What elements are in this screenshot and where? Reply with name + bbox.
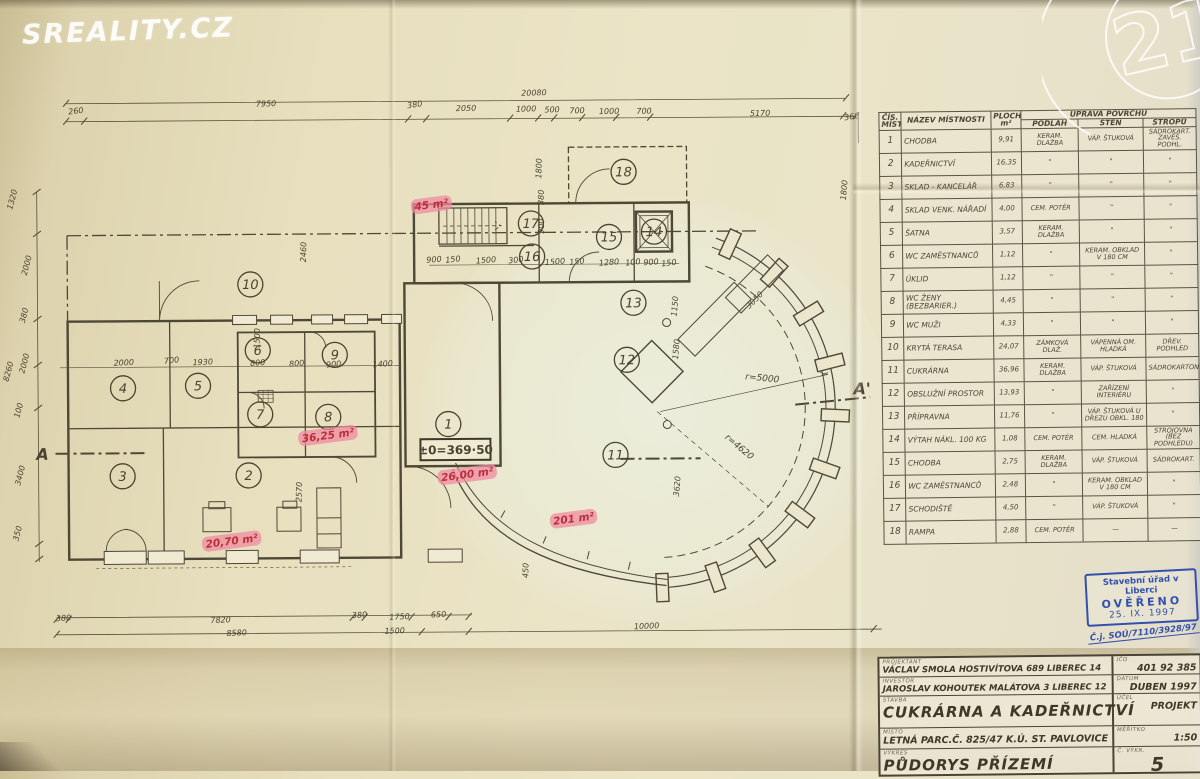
room-number-cell: 15 <box>883 452 906 475</box>
wall-finish-cell: — <box>1083 518 1148 542</box>
room-name-cell: KADEŘNICTVÍ <box>902 152 992 176</box>
title-block-row: IČO401 92 385 <box>1113 655 1199 675</box>
floor-finish-cell: " <box>1024 381 1081 405</box>
room-number-cell: 14 <box>883 429 906 452</box>
floor-finish-cell: " <box>1024 312 1081 336</box>
dim-label: 150 <box>661 258 677 269</box>
title-block-value: 1:50 <box>1117 732 1197 744</box>
title-block-value: CUKRÁRNA A KADEŘNICTVÍ <box>883 701 1109 721</box>
room-name-cell: RAMPA <box>906 520 996 544</box>
room-number-cell: 13 <box>882 406 905 429</box>
title-block-right: IČO401 92 385DATUMDUBEN 1997ÚČELPROJEKTM… <box>1113 655 1200 772</box>
wall-finish-cell: VÁP. ŠTUKOVÁ <box>1083 495 1148 519</box>
dim-label: 380 <box>407 99 423 110</box>
room-number-cell: 7 <box>881 268 904 291</box>
ceiling-finish-cell: " <box>1144 195 1197 219</box>
roomnum-label: 17 <box>523 217 540 232</box>
dim-label: 3620 <box>672 476 683 497</box>
ceiling-finish-cell: SÁDROKART. <box>1147 448 1200 472</box>
roomnum-label: 13 <box>625 296 642 311</box>
title-block-row: PROJEKTANTVÁCLAV SMOLA HOSTIVÍTOVA 689 L… <box>879 656 1111 677</box>
century21-logo: 21 <box>1042 0 1200 141</box>
dim-label: 20080 <box>521 88 547 98</box>
title-block-value: JAROSLAV KOHOUTEK MALÁTOVA 3 LIBEREC 12 <box>883 682 1109 694</box>
room-area-cell: 9,91 <box>991 128 1022 151</box>
century21-21-text: 21 <box>1103 0 1200 95</box>
room-name-cell: VÝTAH NÁKL. 100 KG <box>905 428 995 452</box>
wall-finish-cell: VÁP. ŠTUKOVÁ <box>1081 357 1146 381</box>
title-block-row: INVESTORJAROSLAV KOHOUTEK MALÁTOVA 3 LIB… <box>880 675 1112 696</box>
dim-label: 1800 <box>534 158 544 179</box>
title-block-left: PROJEKTANTVÁCLAV SMOLA HOSTIVÍTOVA 689 L… <box>879 656 1114 774</box>
title-block-row: MÍSTOLETNÁ PARC.Č. 825/47 K.Ú. ST. PAVLO… <box>880 726 1112 749</box>
dim-label: 1320 <box>5 188 19 210</box>
dim-label: 1400 <box>372 359 393 370</box>
wall-finish-cell: ZAŘÍZENÍ INTERIÉRU <box>1081 380 1146 404</box>
room-name-cell: CUKRÁRNA <box>904 359 994 383</box>
floor-finish-cell: " <box>1023 289 1080 313</box>
room-number-cell: 6 <box>880 245 903 268</box>
dim-label: 100 <box>13 402 26 419</box>
level-mark: ±0=369·50 <box>418 439 493 461</box>
title-block-row: Č. VÝKR.5 <box>1114 746 1200 772</box>
dim-label: 2050 <box>456 104 477 113</box>
room-number-cell: 18 <box>884 521 907 544</box>
room-area-cell: 2,75 <box>995 450 1026 473</box>
title-block-value: LETNÁ PARC.Č. 825/47 K.Ú. ST. PAVLOVICE <box>883 733 1109 746</box>
dim-label: 900 <box>643 257 659 267</box>
floor-finish-cell: " <box>1022 174 1079 198</box>
roomnum-label: 11 <box>607 448 624 463</box>
header-room-name: NÁZEV MÍSTNOSTI <box>901 111 991 130</box>
wall-finish-cell: " <box>1078 150 1143 174</box>
title-block-row: MĚŘÍTKO1:50 <box>1114 725 1200 747</box>
room-number-cell: 10 <box>882 337 905 360</box>
room-name-cell: WC ŽENY (BEZBARIER.) <box>903 290 993 314</box>
roomnum-label: 3 <box>118 470 126 485</box>
stamp-box: Stavební úřad v Liberci OVĚŘENO 25. IX. … <box>1084 568 1199 627</box>
ceiling-finish-cell: " <box>1145 241 1198 265</box>
room-row: 18RAMPA2,88CEM. POTĚR—— <box>884 517 1200 544</box>
ceiling-finish-cell: STROJOVNA (BEZ PODHLEDU) <box>1147 425 1200 449</box>
floor-finish-cell: KERAM. DLAŽBA <box>1025 450 1082 474</box>
ceiling-finish-cell: — <box>1148 517 1200 541</box>
room-number-cell: 2 <box>879 153 902 176</box>
room-area-cell: 3,57 <box>992 220 1023 243</box>
ceiling-finish-cell: " <box>1147 402 1200 426</box>
dim-label: 380 <box>352 610 368 620</box>
colonnade <box>653 228 850 602</box>
ceiling-finish-cell: " <box>1145 287 1198 311</box>
room-name-cell: PŘÍPRAVNA <box>905 405 995 429</box>
roomnum-label: 15 <box>601 230 618 245</box>
room-name-cell: SKLAD - KANCELÁŘ <box>902 175 992 199</box>
roomnum-label: 16 <box>524 250 541 265</box>
dim-label: 7820 <box>210 615 231 625</box>
title-block-value: 401 92 385 <box>1116 662 1196 674</box>
dim-label: 8260 <box>2 360 16 382</box>
room-name-cell: CHODBA <box>905 451 995 475</box>
roomnum-label: 12 <box>619 353 636 368</box>
room-number-cell: 3 <box>880 176 903 199</box>
title-block-row: ÚČELPROJEKT <box>1114 693 1200 726</box>
ceiling-finish-cell: DŘEV. PODHLED <box>1146 333 1199 357</box>
header-area: PLOCHAm² <box>991 111 1022 129</box>
dim-label: 150 <box>445 254 461 265</box>
room-number-cell: 1 <box>879 130 902 153</box>
roomnum-label: 7 <box>256 408 265 423</box>
title-block-value: 5 <box>1117 753 1197 776</box>
dim-label: 2460 <box>299 242 309 263</box>
room-number-cell: 4 <box>880 199 903 222</box>
ceiling-finish-cell: " <box>1145 310 1198 334</box>
dim-label: 2000 <box>20 254 34 276</box>
wall-finish-cell: " <box>1080 311 1145 335</box>
dim-label: 1000 <box>599 107 620 116</box>
room-area-cell: 1,12 <box>992 243 1023 266</box>
floor-finish-cell: CEM. POTĚR <box>1022 197 1079 221</box>
dim-label: 1500 <box>475 255 496 266</box>
dim-label: 700 <box>163 355 179 366</box>
room-area-cell: 16,35 <box>991 151 1022 174</box>
room-area-cell: 4,50 <box>995 496 1026 519</box>
dim-label: 700 <box>569 106 584 115</box>
dim-label: 1750 <box>389 612 410 622</box>
room-area-cell: 2,88 <box>996 519 1027 542</box>
roomnum-label: 14 <box>646 225 663 240</box>
wall-finish-cell: KERAM. OBKLAD V 180 CM <box>1080 242 1145 266</box>
dim-label: 8580 <box>226 628 247 638</box>
dim-label: 380 <box>537 190 546 206</box>
room-area-cell: 24,07 <box>993 335 1024 358</box>
section-label: A' <box>851 379 870 398</box>
dim-label: 650 <box>431 610 447 620</box>
title-block-row: DATUMDUBEN 1997 <box>1114 674 1200 694</box>
dim-label: 1500 <box>384 626 405 636</box>
room-legend-table: ČÍS. MÍST. NÁZEV MÍSTNOSTI PLOCHAm² ÚPRA… <box>878 108 1200 545</box>
floor-finish-cell: " <box>1022 151 1079 175</box>
roomnum-label: 4 <box>119 382 127 397</box>
floor-finish-cell: CEM. POTĚR <box>1025 427 1082 451</box>
room-area-cell: 2,48 <box>995 473 1026 496</box>
room-area-cell: 4,33 <box>993 312 1024 335</box>
room-name-cell: KRYTÁ TERASA <box>904 336 994 360</box>
level-mark-text: ±0=369·50 <box>418 443 493 458</box>
wall-finish-cell: " <box>1080 288 1145 312</box>
room-name-cell: OBSLUŽNÍ PROSTOR <box>905 382 995 406</box>
room-number-cell: 12 <box>882 383 905 406</box>
dim-label: 500 <box>544 105 559 114</box>
room-name-cell: WC ZAMĚSTNANCŮ <box>906 474 996 498</box>
room-area-cell: 1,12 <box>993 266 1024 289</box>
ceiling-finish-cell: SÁDROKARTON <box>1146 356 1199 380</box>
room-name-cell: WC MUŽI <box>904 313 994 337</box>
dim-label: 800 <box>289 359 305 369</box>
floor-finish-cell: " <box>1025 473 1082 497</box>
ceiling-finish-cell: " <box>1145 264 1198 288</box>
dim-label: 100 <box>625 257 641 268</box>
floor-finish-cell: ZÁMKOVÁ DLAŽ. <box>1024 335 1081 359</box>
ceiling-finish-cell: " <box>1147 471 1200 495</box>
title-block-row: STAVBACUKRÁRNA A KADEŘNICTVÍ <box>880 694 1112 728</box>
windows <box>95 314 463 569</box>
dim-label: 150 <box>569 256 585 267</box>
title-block-value: VÁCLAV SMOLA HOSTIVÍTOVA 689 LIBEREC 14 <box>882 663 1108 675</box>
wall-finish-cell: " <box>1079 173 1144 197</box>
dim-label: 1800 <box>839 180 850 201</box>
dim-label: 1280 <box>599 257 620 268</box>
dim-label: 3050 <box>744 290 765 311</box>
title-block-value: DUBEN 1997 <box>1117 681 1197 693</box>
dim-label: 350 <box>11 525 24 542</box>
dim-label: 260 <box>68 106 84 117</box>
dim-label: 380 <box>18 307 31 324</box>
room-number-cell: 9 <box>881 314 904 337</box>
wall-finish-cell: VÁPENNÁ OM. HLADKÁ <box>1081 334 1146 358</box>
room-name-cell: SCHODIŠTĚ <box>906 497 996 521</box>
dim-label: 900 <box>426 255 442 265</box>
dim-label: 2570 <box>294 482 304 503</box>
room-area-cell: 36,96 <box>994 358 1025 381</box>
roomnum-label: 18 <box>615 165 632 180</box>
dim-label: 2000 <box>113 358 134 368</box>
title-block-value: PROJEKT <box>1117 700 1197 712</box>
roomnum-label: 2 <box>244 469 252 484</box>
dim-label: 1150 <box>670 296 681 317</box>
century21-outer-arc <box>1042 0 1106 141</box>
room-area-cell: 4,00 <box>992 197 1023 220</box>
dim-label: 360 <box>844 111 860 122</box>
room-number-cell: 16 <box>883 475 906 498</box>
wall-finish-cell: CEM. HLADKÁ <box>1082 426 1147 450</box>
floor-finish-cell: " <box>1023 266 1080 290</box>
room-name-cell: ŠATNA <box>903 221 993 245</box>
dim-label: 1580 <box>671 339 682 360</box>
dim-label: 1500 <box>545 257 566 268</box>
roomnum-label: 10 <box>242 278 259 293</box>
ceiling-finish-cell: " <box>1146 379 1199 403</box>
floor-finish-cell: " <box>1026 496 1083 520</box>
room-area-cell: 13,93 <box>994 381 1025 404</box>
ceiling-finish-cell: " <box>1143 149 1196 173</box>
roomnum-label: 1 <box>444 418 452 433</box>
dim-label: 5170 <box>750 109 771 118</box>
outer-walls <box>67 202 691 559</box>
furniture <box>201 255 785 549</box>
room-area-cell: 6,83 <box>991 174 1022 197</box>
red-area-annotations: 45 m²36,25 m²20,70 m²26,00 m²201 m² <box>199 194 598 553</box>
dim-label: 700 <box>636 107 651 116</box>
roomnum-label: 6 <box>254 344 262 359</box>
title-block-value: PŮDORYS PŘÍZEMÍ <box>883 754 1109 774</box>
dim-label: 2000 <box>18 352 32 374</box>
room-number-cell: 8 <box>881 291 904 314</box>
partition-walls <box>66 146 689 559</box>
wall-finish-cell: " <box>1079 219 1144 243</box>
dim-label: 3400 <box>13 464 27 486</box>
floor-finish-cell: CEM. POTĚR <box>1026 519 1083 543</box>
rad-label: r=4620 <box>722 433 755 463</box>
wall-finish-cell: KERAM. OBKLAD V 180 CM <box>1082 472 1147 496</box>
room-name-cell: SKLAD VENK. NÁŘADÍ <box>902 198 992 222</box>
roomnum-label: 8 <box>324 410 332 425</box>
room-area-cell: 4,45 <box>993 289 1024 312</box>
wall-finish-cell: " <box>1079 196 1144 220</box>
dim-label: 1000 <box>516 104 537 113</box>
section-label: A <box>34 445 49 464</box>
room-area-cell: 1,08 <box>994 427 1025 450</box>
roomnum-label: 5 <box>194 379 202 394</box>
room-name-cell: WC ZAMĚSTNANCŮ <box>903 244 993 268</box>
floor-finish-cell: " <box>1025 404 1082 428</box>
wall-finish-cell: VÁP. ŠTUKOVÁ <box>1082 449 1147 473</box>
ceiling-finish-cell: " <box>1144 218 1197 242</box>
rad-label: r=5000 <box>745 372 780 385</box>
dim-label: 7950 <box>256 99 277 108</box>
dim-label: 450 <box>521 563 530 579</box>
room-number-cell: 11 <box>882 360 905 383</box>
dim-label: 10000 <box>634 621 660 631</box>
dim-label: 380 <box>56 613 72 623</box>
room-number-cell: 17 <box>884 498 907 521</box>
room-name-cell: CHODBA <box>901 129 991 153</box>
roomnum-label: 9 <box>331 348 339 363</box>
ceiling-finish-cell: " <box>1148 494 1200 518</box>
floor-finish-cell: KERAM. DLAŽBA <box>1022 220 1079 244</box>
room-name-cell: ÚKLID <box>903 267 993 291</box>
approval-stamp: Stavební úřad v Liberci OVĚŘENO 25. IX. … <box>1084 568 1199 642</box>
header-room-number: ČÍS. MÍST. <box>879 112 902 130</box>
room-area-cell: 11,76 <box>994 404 1025 427</box>
title-block: PROJEKTANTVÁCLAV SMOLA HOSTIVÍTOVA 689 L… <box>877 653 1200 776</box>
dim-label: 1930 <box>192 357 213 367</box>
wall-finish-cell: " <box>1080 265 1145 289</box>
wall-finish-cell: VÁP. ŠTUKOVÁ U DŘEZU OBKL. 180 <box>1082 403 1147 427</box>
floor-finish-cell: KERAM. DLAŽBA <box>1024 358 1081 382</box>
room-number-cell: 5 <box>880 222 903 245</box>
ceiling-finish-cell: " <box>1144 172 1197 196</box>
floor-finish-cell: " <box>1023 243 1080 267</box>
